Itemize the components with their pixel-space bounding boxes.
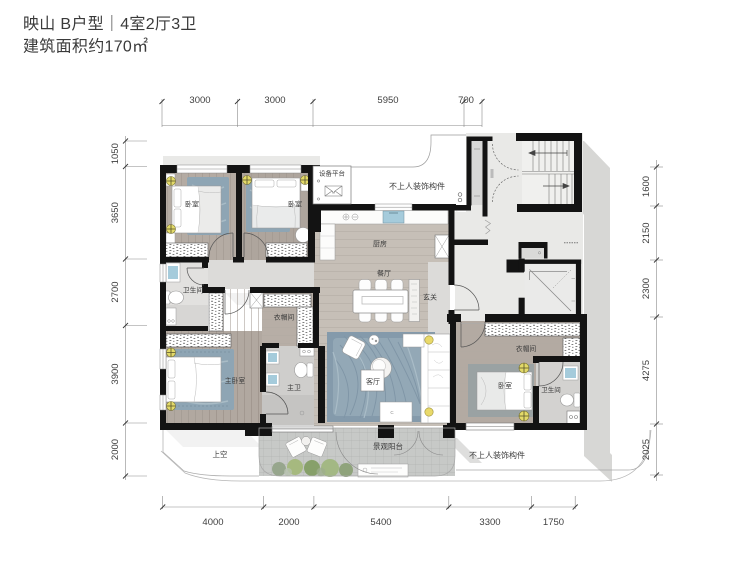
svg-text:2150: 2150: [641, 222, 652, 243]
svg-text:2000: 2000: [278, 517, 299, 528]
svg-text:衣帽间: 衣帽间: [274, 313, 295, 322]
svg-text:700: 700: [458, 95, 474, 106]
svg-text:4000: 4000: [202, 517, 223, 528]
svg-text:卫生间: 卫生间: [541, 385, 561, 394]
svg-text:衣帽间: 衣帽间: [516, 344, 537, 353]
svg-text:2300: 2300: [641, 278, 652, 299]
svg-text:建筑面积约170㎡: 建筑面积约170㎡: [23, 38, 148, 56]
svg-text:景观阳台: 景观阳台: [373, 441, 403, 451]
svg-text:3650: 3650: [110, 202, 121, 223]
svg-text:厨房: 厨房: [373, 239, 387, 248]
svg-text:主卧室: 主卧室: [225, 376, 246, 385]
svg-text:3000: 3000: [264, 95, 285, 106]
svg-text:不上人装饰构件: 不上人装饰构件: [389, 181, 445, 191]
svg-text:上空: 上空: [213, 449, 228, 459]
svg-text:卫生间: 卫生间: [183, 286, 204, 295]
svg-text:卧室: 卧室: [288, 200, 302, 209]
svg-text:卧室: 卧室: [498, 381, 512, 390]
svg-text:玄关: 玄关: [423, 293, 437, 302]
svg-text:3900: 3900: [110, 363, 121, 384]
svg-text:不上人装饰构件: 不上人装饰构件: [469, 450, 525, 460]
svg-text:3000: 3000: [189, 95, 210, 106]
svg-text:1600: 1600: [641, 176, 652, 197]
svg-text:5950: 5950: [377, 95, 398, 106]
svg-text:2000: 2000: [110, 439, 121, 460]
svg-text:餐厅: 餐厅: [377, 269, 391, 278]
svg-text:M: M: [332, 190, 335, 195]
svg-text:1050: 1050: [110, 143, 121, 164]
svg-text:1750: 1750: [543, 517, 564, 528]
svg-text:映山 B户型｜4室2厅3卫: 映山 B户型｜4室2厅3卫: [23, 15, 197, 33]
svg-text:4275: 4275: [641, 360, 652, 381]
svg-text:客厅: 客厅: [366, 377, 380, 386]
svg-text:2025: 2025: [641, 439, 652, 460]
svg-text:主卫: 主卫: [287, 383, 301, 392]
svg-text:2700: 2700: [110, 281, 121, 302]
svg-text:3300: 3300: [479, 517, 500, 528]
svg-text:卧室: 卧室: [185, 200, 199, 209]
svg-text:设备平台: 设备平台: [319, 169, 345, 178]
svg-text:5400: 5400: [370, 517, 391, 528]
